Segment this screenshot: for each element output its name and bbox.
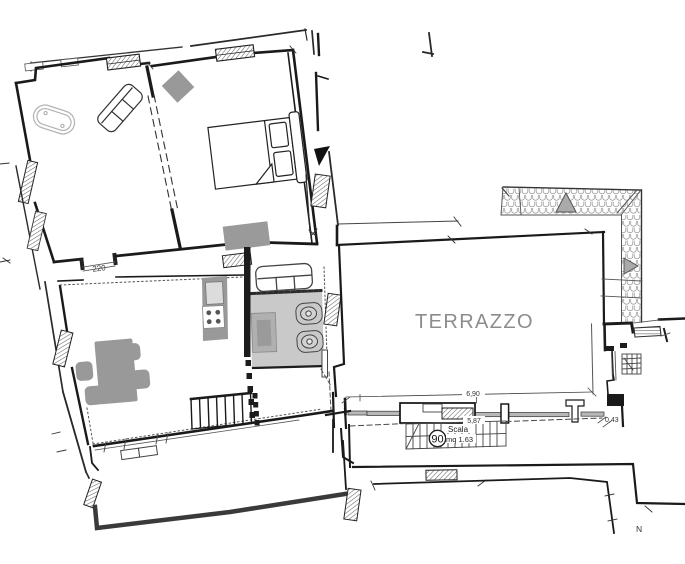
svg-text:90: 90 [431,434,443,446]
svg-text:0,43: 0,43 [605,417,619,424]
svg-text:Scala: Scala [448,425,469,434]
svg-text:TERRAZZO: TERRAZZO [415,311,534,333]
svg-text:mq 1.63: mq 1.63 [446,435,473,444]
svg-text:5,87: 5,87 [467,418,481,425]
svg-text:6,90: 6,90 [466,391,480,398]
svg-text:N: N [636,524,642,534]
svg-text:220: 220 [92,263,107,274]
